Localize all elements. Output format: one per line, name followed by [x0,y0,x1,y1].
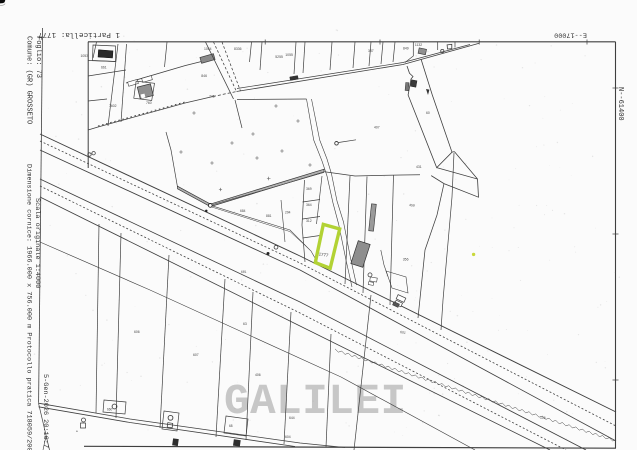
svg-text:760: 760 [146,101,152,105]
svg-text:5-Gen-2026 20:16:7: 5-Gen-2026 20:16:7 [41,374,49,448]
svg-text:68: 68 [229,424,233,428]
svg-text:459: 459 [409,203,415,208]
svg-text:1053: 1053 [81,54,89,58]
svg-text:407: 407 [374,125,380,129]
svg-text:63: 63 [243,322,247,326]
svg-text:881: 881 [266,214,272,218]
svg-text:660: 660 [107,408,113,412]
svg-text:5255: 5255 [275,55,283,59]
svg-text:1055: 1055 [285,53,293,57]
svg-text:406: 406 [255,373,261,377]
svg-text:8336: 8336 [234,47,242,51]
svg-text:606: 606 [134,330,140,334]
svg-text:681: 681 [241,270,247,274]
svg-text:1054: 1054 [204,47,212,51]
svg-text:364: 364 [306,203,312,207]
svg-text:661: 661 [101,66,107,70]
svg-text:E--17000: E--17000 [554,30,587,38]
svg-text:Foglio: 73: Foglio: 73 [34,36,42,78]
svg-text:644: 644 [289,416,295,420]
svg-text:684: 684 [240,209,246,213]
svg-text:N--61400: N--61400 [616,87,624,121]
svg-text:849: 849 [403,47,409,51]
svg-text:387: 387 [368,49,374,53]
svg-text:Comune: (GR) GROSSETO: Comune: (GR) GROSSETO [25,36,33,124]
svg-text:369: 369 [306,187,312,191]
svg-text:1132: 1132 [415,43,422,47]
svg-text:431: 431 [416,165,422,169]
svg-text:60: 60 [426,111,430,115]
svg-text:846: 846 [201,74,207,78]
svg-text:1 Particella: 1777: 1 Particella: 1777 [38,30,120,38]
svg-text:7602: 7602 [109,104,117,108]
svg-text:294: 294 [285,211,291,215]
svg-text:106: 106 [540,416,546,420]
svg-text:745: 745 [209,95,215,99]
svg-text:356: 356 [403,258,409,262]
svg-text:607: 607 [193,353,199,357]
svg-text:604: 604 [285,435,291,439]
svg-text:312: 312 [306,219,312,223]
svg-text:GALILEI: GALILEI [224,378,407,426]
svg-text:Dimensione cornice: 1966.000 x: Dimensione cornice: 1966.000 x 756.000 m… [25,164,33,450]
